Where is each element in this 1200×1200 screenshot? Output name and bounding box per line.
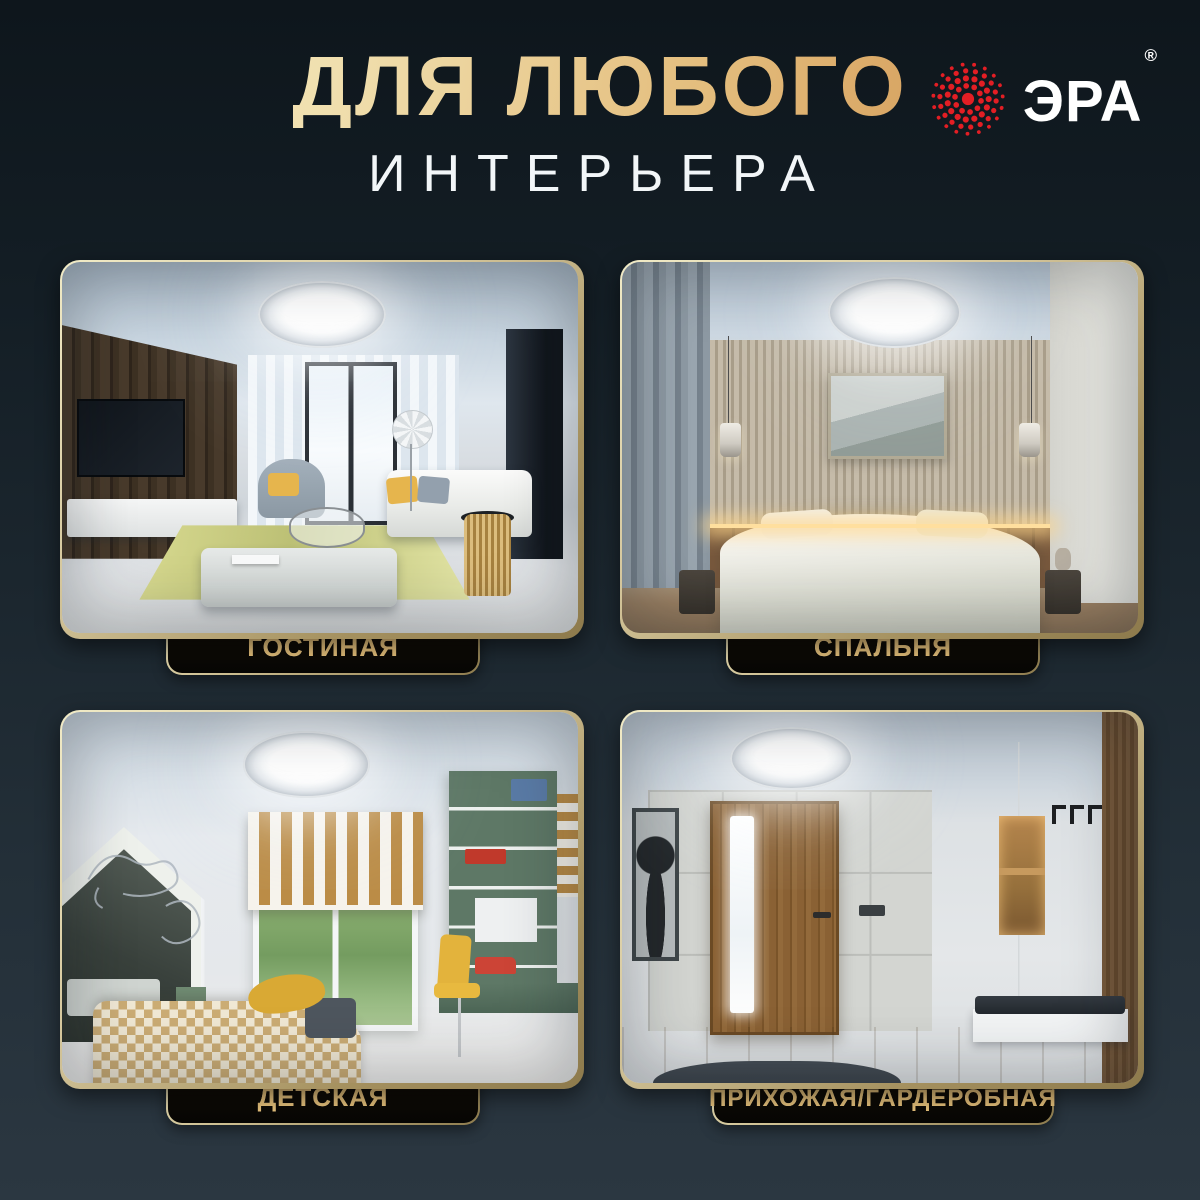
photo-bedroom <box>622 262 1138 633</box>
photo-vignette <box>62 262 578 633</box>
brand-name: ЭРА® <box>1023 73 1156 131</box>
room-label-hallway: ПРИХОЖАЯ/ГАРДЕРОБНАЯ <box>709 1085 1057 1113</box>
photo-vignette <box>62 712 578 1083</box>
photo-vignette <box>622 262 1138 633</box>
room-card-bedroom <box>620 260 1144 639</box>
page-subtitle: ИНТЕРЬЕРА <box>0 148 1200 200</box>
brand-logo: ЭРА® <box>921 52 1156 151</box>
photo-vignette <box>622 712 1138 1083</box>
brand-starburst-icon <box>921 52 1015 151</box>
promo-page: { "header": { "title_line1": "ДЛЯ ЛЮБОГО… <box>0 0 1200 1200</box>
registered-mark: ® <box>1144 46 1158 65</box>
room-card-hallway <box>620 710 1144 1089</box>
room-card-living-room <box>60 260 584 639</box>
photo-kids-room <box>62 712 578 1083</box>
photo-living-room <box>62 262 578 633</box>
room-card-kids-room <box>60 710 584 1089</box>
photo-hallway <box>622 712 1138 1083</box>
